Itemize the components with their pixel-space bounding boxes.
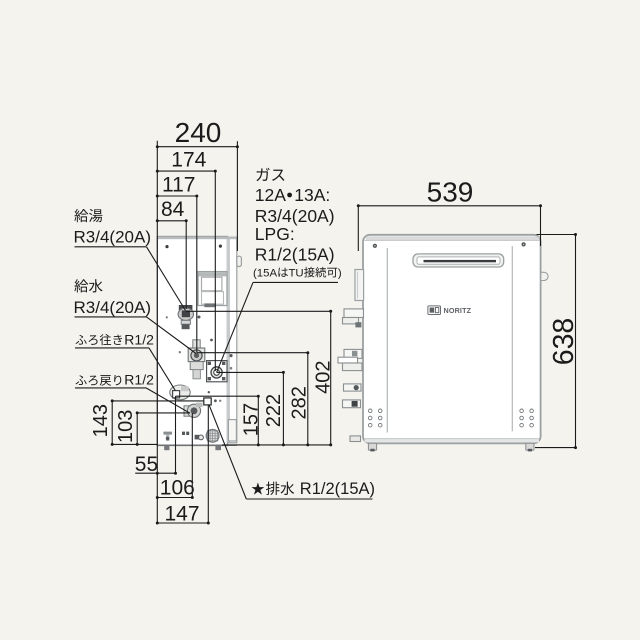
svg-text:402: 402 [313, 361, 335, 394]
svg-text:(15A: (15A [253, 268, 277, 280]
svg-text:143: 143 [90, 404, 112, 437]
svg-text:12A: 12A [255, 185, 286, 205]
svg-text:147: 147 [165, 503, 200, 526]
svg-text:LPG:: LPG: [255, 224, 295, 244]
svg-text:R1/2(15A): R1/2(15A) [255, 244, 335, 264]
svg-text:222: 222 [263, 394, 285, 427]
svg-text:84: 84 [161, 198, 185, 221]
svg-text:539: 539 [427, 177, 474, 208]
svg-text:R3/4(20A): R3/4(20A) [74, 298, 151, 317]
svg-text:240: 240 [175, 117, 222, 148]
svg-text:282: 282 [289, 386, 311, 419]
svg-text:NORITZ: NORITZ [444, 306, 472, 315]
svg-text:157: 157 [240, 403, 262, 436]
svg-text:13A:: 13A: [294, 185, 330, 205]
svg-text:117: 117 [162, 173, 195, 196]
svg-text:TU: TU [288, 268, 303, 280]
svg-text:106: 106 [160, 477, 195, 500]
svg-text:638: 638 [548, 318, 580, 366]
svg-text:55: 55 [135, 453, 158, 476]
svg-text:R1/2(15A): R1/2(15A) [300, 480, 375, 498]
svg-text:): ) [338, 268, 342, 280]
svg-text:R3/4(20A): R3/4(20A) [74, 228, 151, 247]
svg-text:R1/2: R1/2 [124, 331, 154, 347]
svg-text:103: 103 [115, 410, 137, 443]
svg-text:174: 174 [171, 148, 206, 171]
svg-text:R1/2: R1/2 [124, 372, 154, 388]
